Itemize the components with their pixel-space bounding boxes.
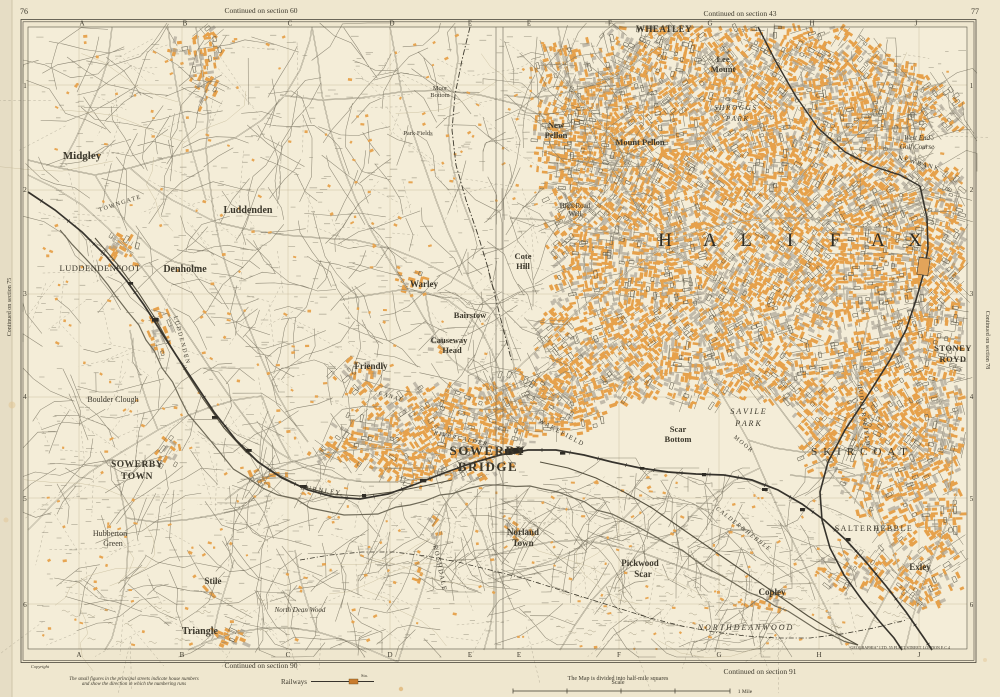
svg-text:G: G bbox=[707, 20, 712, 28]
svg-text:E: E bbox=[517, 651, 521, 659]
svg-text:77: 77 bbox=[971, 7, 979, 16]
svg-text:Friendly: Friendly bbox=[355, 361, 388, 371]
svg-text:E: E bbox=[527, 20, 531, 28]
svg-text:Sta.: Sta. bbox=[361, 673, 368, 678]
svg-text:E: E bbox=[468, 20, 472, 28]
svg-text:5: 5 bbox=[23, 495, 27, 503]
svg-text:Green: Green bbox=[103, 539, 123, 548]
svg-text:Pickwood: Pickwood bbox=[621, 558, 659, 568]
svg-text:B: B bbox=[180, 651, 185, 659]
svg-text:LUDDENDENFOOT: LUDDENDENFOOT bbox=[59, 263, 140, 273]
svg-text:1 Mile: 1 Mile bbox=[738, 689, 753, 695]
svg-text:SKIRCOAT: SKIRCOAT bbox=[811, 446, 913, 458]
svg-text:P A R K: P A R K bbox=[725, 115, 749, 123]
svg-text:WHEATLEY: WHEATLEY bbox=[636, 24, 692, 34]
svg-text:Midgley: Midgley bbox=[63, 150, 102, 162]
svg-text:Copyright: Copyright bbox=[31, 664, 50, 669]
svg-text:SOWERBY: SOWERBY bbox=[450, 443, 527, 458]
svg-text:Causeway: Causeway bbox=[431, 335, 469, 345]
svg-text:D: D bbox=[387, 651, 392, 659]
svg-text:C: C bbox=[288, 20, 293, 28]
svg-text:3: 3 bbox=[970, 290, 974, 298]
svg-text:F: F bbox=[830, 230, 841, 251]
svg-text:Hubberton: Hubberton bbox=[93, 529, 127, 538]
svg-text:S A V I L E: S A V I L E bbox=[730, 407, 765, 416]
svg-text:Scale: Scale bbox=[612, 680, 625, 686]
svg-text:H: H bbox=[809, 20, 814, 28]
svg-text:and show the direction in whic: and show the direction in which the numb… bbox=[82, 682, 186, 687]
svg-text:2: 2 bbox=[23, 186, 27, 194]
svg-text:6: 6 bbox=[970, 601, 974, 609]
svg-text:Head: Head bbox=[442, 345, 462, 355]
svg-text:D: D bbox=[389, 20, 394, 28]
svg-text:Continued on section 60: Continued on section 60 bbox=[224, 6, 297, 15]
svg-text:Norland: Norland bbox=[507, 527, 539, 537]
svg-text:A: A bbox=[871, 230, 885, 251]
svg-text:Moor: Moor bbox=[433, 85, 448, 92]
svg-text:BRIDGE: BRIDGE bbox=[458, 459, 518, 474]
svg-text:Mount Pellon: Mount Pellon bbox=[615, 137, 665, 147]
svg-text:Stile: Stile bbox=[205, 576, 222, 586]
svg-text:Park Fields: Park Fields bbox=[403, 130, 433, 137]
svg-text:Continued on section 78: Continued on section 78 bbox=[984, 311, 990, 370]
svg-text:A: A bbox=[79, 20, 84, 28]
svg-text:Scar: Scar bbox=[670, 424, 687, 434]
svg-text:X: X bbox=[908, 230, 922, 251]
svg-text:1: 1 bbox=[970, 82, 974, 90]
svg-text:C: C bbox=[286, 651, 291, 659]
svg-text:1: 1 bbox=[23, 82, 27, 90]
svg-text:TOWN: TOWN bbox=[121, 472, 153, 482]
svg-text:Bairstow: Bairstow bbox=[454, 310, 487, 320]
svg-text:Cote: Cote bbox=[515, 251, 532, 261]
svg-text:4: 4 bbox=[970, 393, 974, 401]
svg-text:Warley: Warley bbox=[410, 279, 438, 289]
svg-text:Boulder Clough: Boulder Clough bbox=[87, 395, 138, 404]
svg-text:Continued on section 91: Continued on section 91 bbox=[723, 667, 796, 676]
svg-text:4: 4 bbox=[23, 393, 27, 401]
svg-text:Luddenden: Luddenden bbox=[224, 205, 273, 216]
svg-text:ROYD: ROYD bbox=[939, 354, 966, 364]
svg-text:Bottom: Bottom bbox=[430, 92, 450, 99]
svg-text:Continued on section 90: Continued on section 90 bbox=[224, 661, 297, 670]
svg-text:A: A bbox=[76, 651, 81, 659]
svg-text:N O R T H D E A N W O O D: N O R T H D E A N W O O D bbox=[697, 623, 793, 632]
svg-text:P A R K: P A R K bbox=[734, 419, 761, 428]
svg-text:Town: Town bbox=[512, 538, 533, 548]
svg-text:F: F bbox=[617, 651, 621, 659]
svg-text:Railways: Railways bbox=[281, 678, 307, 686]
svg-text:L: L bbox=[740, 230, 752, 251]
svg-text:SALTERHEBBLE: SALTERHEBBLE bbox=[835, 524, 914, 533]
svg-text:3: 3 bbox=[23, 290, 27, 298]
svg-text:STONEY: STONEY bbox=[934, 343, 972, 353]
svg-text:I: I bbox=[787, 230, 793, 251]
svg-text:S H R O G G S: S H R O G G S bbox=[714, 104, 756, 112]
svg-text:E: E bbox=[468, 651, 472, 659]
svg-text:Lee: Lee bbox=[716, 54, 729, 64]
svg-text:High Road: High Road bbox=[560, 202, 591, 210]
svg-text:Pellon: Pellon bbox=[545, 130, 568, 140]
svg-text:F: F bbox=[608, 20, 612, 28]
svg-text:H: H bbox=[816, 651, 821, 659]
svg-text:Hill: Hill bbox=[516, 261, 530, 271]
svg-text:Continued on section 43: Continued on section 43 bbox=[703, 9, 776, 18]
svg-text:J: J bbox=[915, 20, 918, 28]
svg-text:SOWERBY: SOWERBY bbox=[111, 460, 163, 470]
svg-text:Golf Course: Golf Course bbox=[900, 143, 934, 151]
svg-text:North Dean Wood: North Dean Wood bbox=[274, 606, 326, 614]
svg-text:A: A bbox=[703, 230, 717, 251]
svg-text:G: G bbox=[716, 651, 721, 659]
svg-text:Copley: Copley bbox=[759, 587, 787, 597]
svg-text:76: 76 bbox=[20, 7, 28, 16]
svg-text:Exley: Exley bbox=[909, 562, 931, 572]
svg-text:Bottom: Bottom bbox=[665, 434, 692, 444]
svg-text:6: 6 bbox=[23, 601, 27, 609]
svg-text:West End: West End bbox=[904, 134, 930, 142]
svg-text:5: 5 bbox=[970, 495, 974, 503]
svg-text:Scar: Scar bbox=[634, 569, 652, 579]
svg-text:H: H bbox=[658, 230, 672, 251]
svg-text:Triangle: Triangle bbox=[182, 626, 218, 637]
svg-text:Denholme: Denholme bbox=[163, 264, 207, 275]
svg-text:2: 2 bbox=[970, 186, 974, 194]
svg-text:New: New bbox=[548, 120, 565, 130]
svg-text:“GEOGRAPHIA” LTD. 55 FLEET STR: “GEOGRAPHIA” LTD. 55 FLEET STREET. LONDO… bbox=[849, 645, 950, 650]
svg-text:Well: Well bbox=[568, 210, 581, 218]
svg-text:Mount: Mount bbox=[711, 64, 736, 74]
svg-text:B: B bbox=[183, 20, 188, 28]
svg-text:J: J bbox=[918, 651, 921, 659]
svg-text:Continued on section 75: Continued on section 75 bbox=[7, 278, 13, 337]
